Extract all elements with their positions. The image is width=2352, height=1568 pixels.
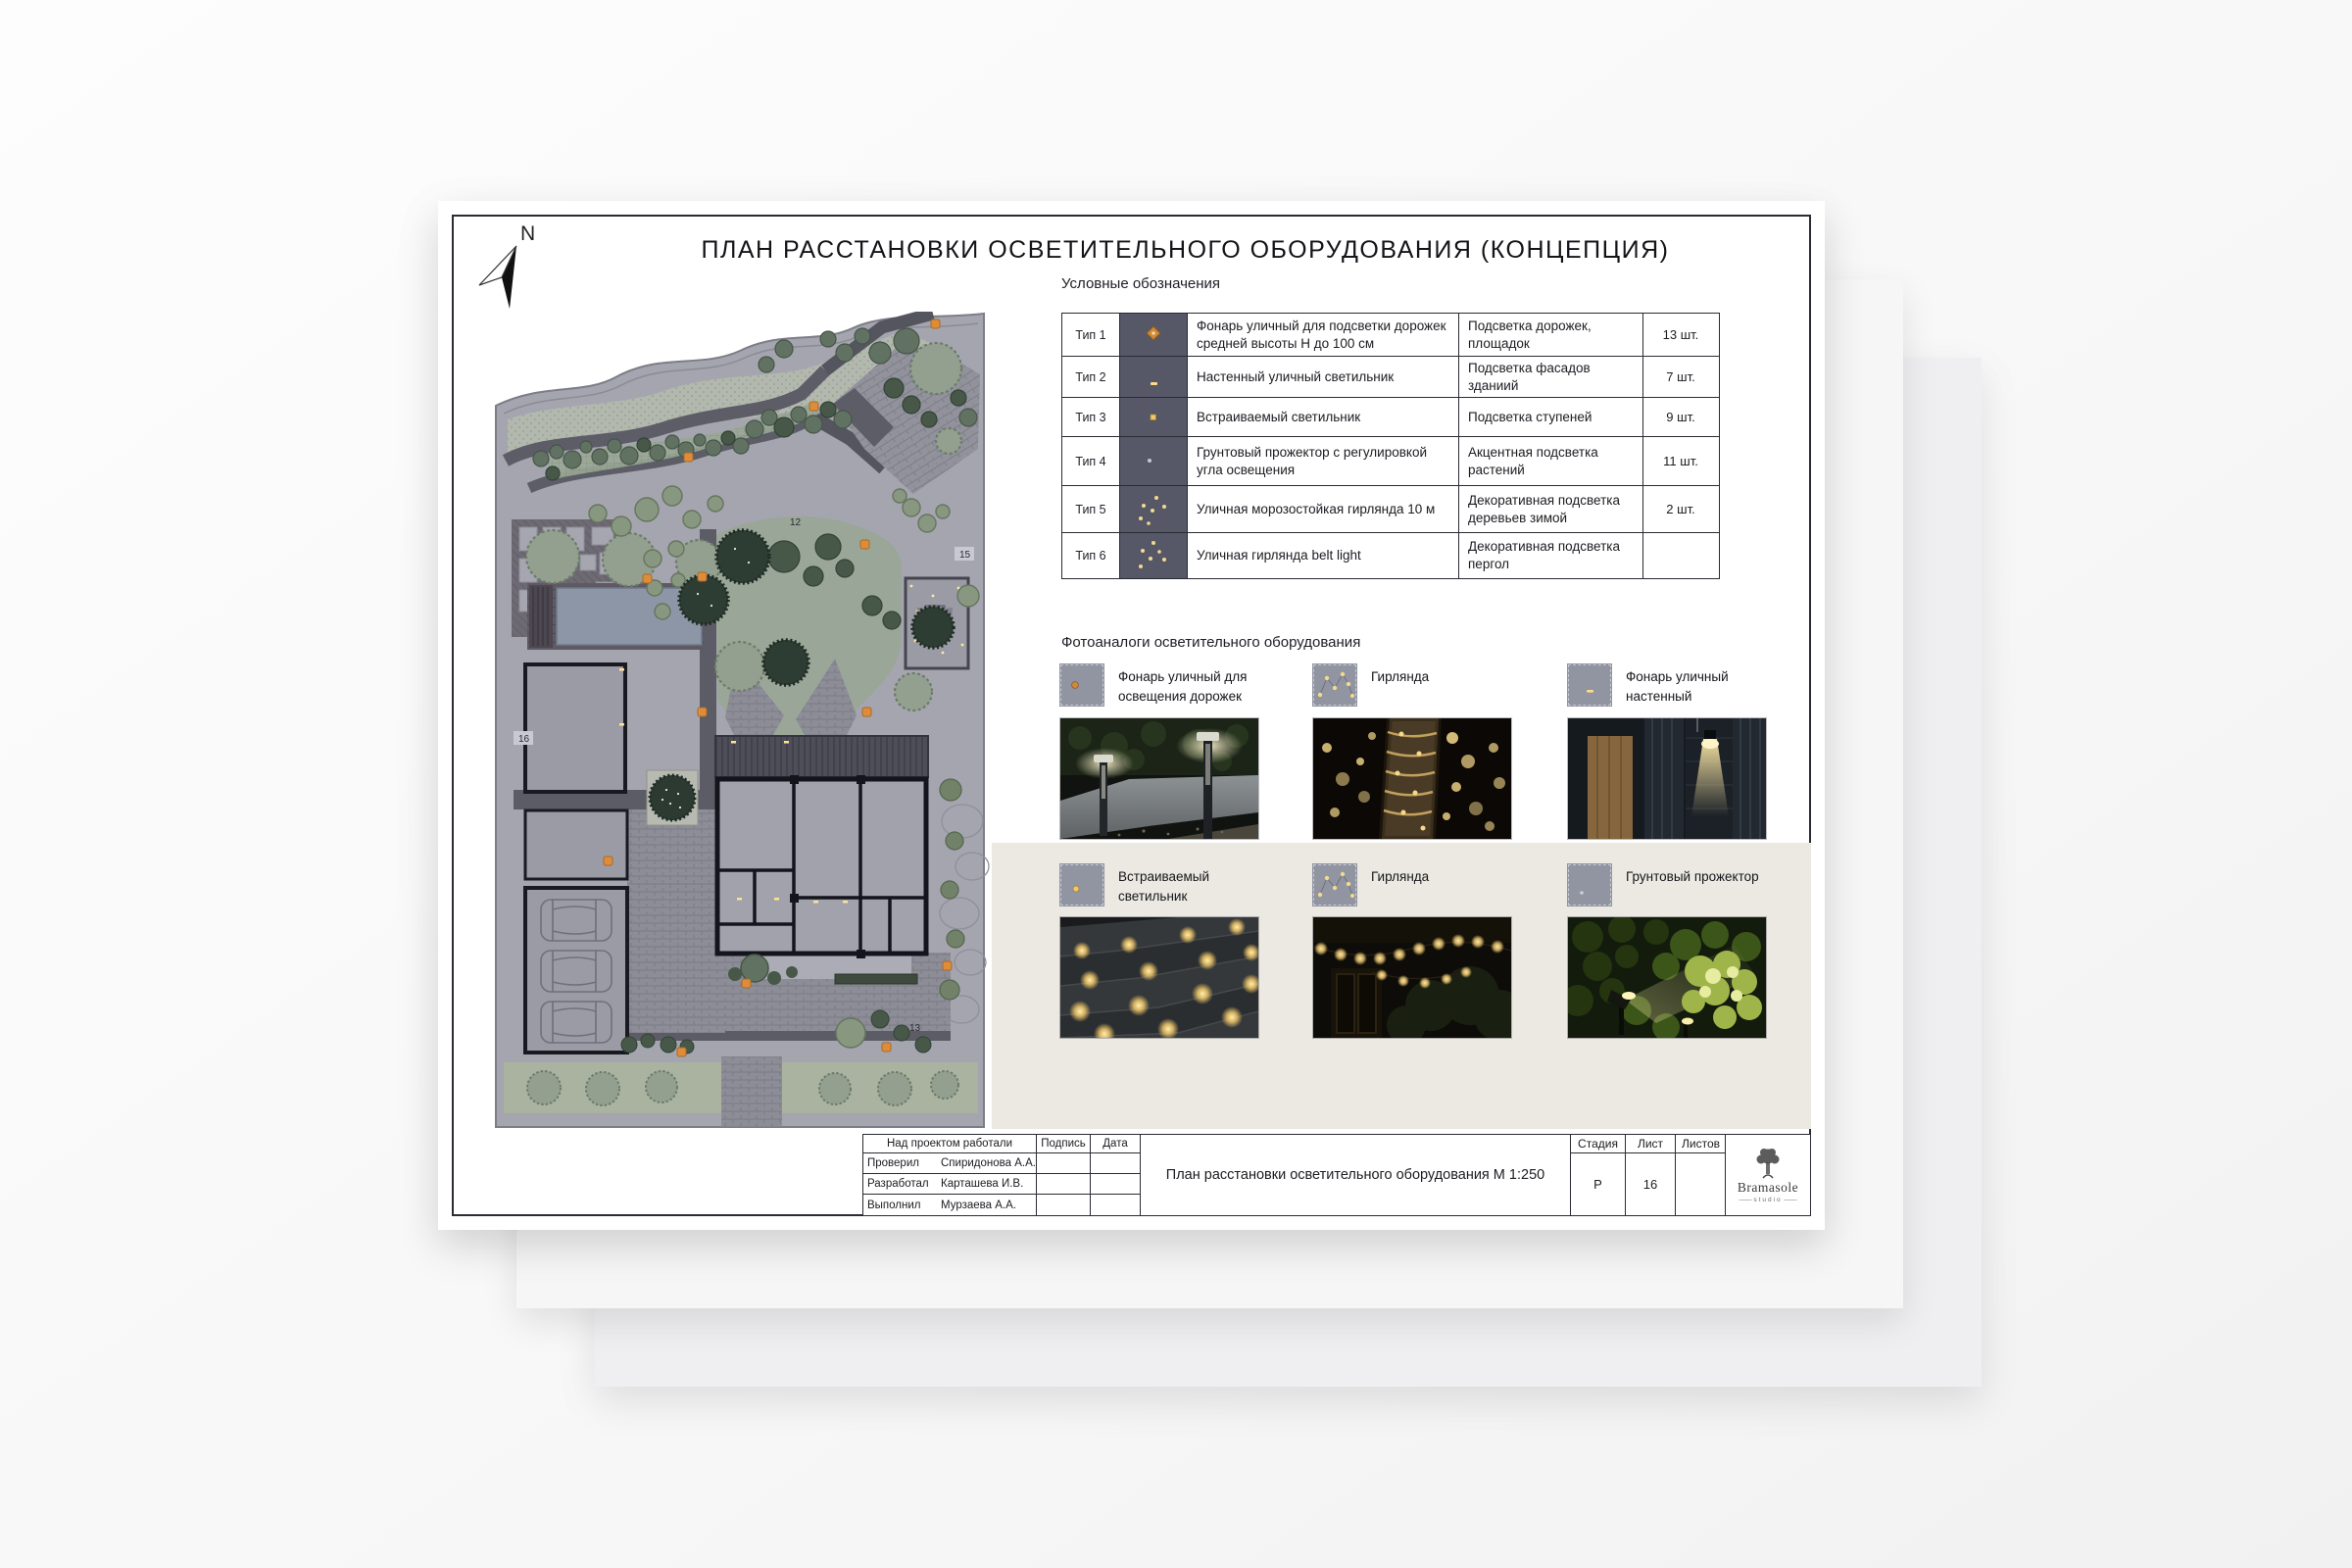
table-row: Тип 5 Уличная морозостойкая гирлянда 10 …	[1062, 486, 1719, 533]
legend-type-label: Тип 1	[1062, 314, 1120, 356]
person-name: Спиридонова А.А.	[937, 1153, 1037, 1174]
legend-purpose: Декоративная подсветка пергол	[1459, 533, 1643, 578]
photo-garland-tree	[1313, 718, 1511, 839]
legend-count: 11 шт.	[1643, 437, 1718, 485]
drawing-title: План расстановки осветительного оборудов…	[1141, 1135, 1571, 1215]
logo-subtitle: studio	[1739, 1197, 1797, 1203]
role-label: Проверил	[863, 1153, 937, 1174]
legend-count: 2 шт.	[1643, 486, 1718, 532]
plan-label-13: 13	[909, 1023, 921, 1034]
table-row: Тип 4 Грунтовый прожектор с регулировкой…	[1062, 437, 1719, 486]
legend-purpose: Декоративная подсветка деревьев зимой	[1459, 486, 1643, 532]
signature-cell	[1037, 1174, 1091, 1195]
garland-icon	[1312, 863, 1357, 906]
title-block-team-table: Над проектом работали Подпись Дата Прове…	[863, 1135, 1141, 1215]
legend-count: 7 шт.	[1643, 357, 1718, 397]
photo-deck-step-lights	[1060, 917, 1258, 1038]
signature-header: Подпись	[1037, 1135, 1091, 1153]
photo-legend-item: Гирлянда	[1312, 663, 1538, 707]
signature-cell	[1037, 1153, 1091, 1174]
ground-spotlight-icon	[1567, 863, 1612, 906]
legend-description: Уличная морозостойкая гирлянда 10 м	[1188, 486, 1459, 532]
studio-logo: Bramasole studio	[1726, 1135, 1810, 1215]
photo-label: Фонарь уличный настенный	[1626, 663, 1773, 706]
photo-legend-item: Грунтовый прожектор	[1567, 863, 1792, 906]
date-cell	[1091, 1174, 1141, 1195]
legend-description: Встраиваемый светильник	[1188, 398, 1459, 436]
drawing-sheet: N ПЛАН РАССТАНОВКИ ОСВЕТИТЕЛЬНОГО ОБОРУД…	[438, 201, 1825, 1230]
bollard-light-icon	[1120, 314, 1188, 356]
date-header: Дата	[1091, 1135, 1141, 1153]
photo-string-lights-pergola	[1313, 917, 1511, 1038]
table-row: Тип 3 Встраиваемый светильник Подсветка …	[1062, 398, 1719, 437]
legend-type-label: Тип 6	[1062, 533, 1120, 578]
signature-cell	[1037, 1195, 1091, 1215]
north-label: N	[520, 222, 535, 246]
legend-count	[1643, 533, 1718, 578]
plan-label-16: 16	[518, 734, 530, 745]
legend-purpose: Подсветка ступеней	[1459, 398, 1643, 436]
legend-purpose: Акцентная подсветка растений	[1459, 437, 1643, 485]
stage-value: Р	[1571, 1153, 1626, 1215]
garland-icon	[1312, 663, 1357, 707]
bollard-light-icon	[1059, 663, 1104, 707]
stage-sheet-table: Стадия Лист Листов Р 16	[1571, 1135, 1726, 1215]
photo-label: Грунтовый прожектор	[1626, 863, 1773, 887]
person-name: Мурзаева А.А.	[937, 1195, 1037, 1215]
legend-count: 9 шт.	[1643, 398, 1718, 436]
legend-type-label: Тип 4	[1062, 437, 1120, 485]
photo-ground-spotlight	[1568, 917, 1766, 1038]
plan-label-12: 12	[790, 517, 802, 528]
title-block: Над проектом работали Подпись Дата Прове…	[862, 1134, 1811, 1216]
date-cell	[1091, 1153, 1141, 1174]
legend-type-label: Тип 2	[1062, 357, 1120, 397]
wall-light-icon	[1120, 357, 1188, 397]
recessed-light-icon	[1120, 398, 1188, 436]
photo-label: Гирлянда	[1371, 663, 1508, 687]
sheet-header: Лист	[1626, 1135, 1676, 1153]
photo-wall-light	[1568, 718, 1766, 839]
legend-description: Настенный уличный светильник	[1188, 357, 1459, 397]
legend-section-title: Условные обозначения	[1061, 275, 1220, 292]
legend-table: Тип 1 Фонарь уличный для подсветки дорож…	[1061, 313, 1720, 579]
garland-icon	[1120, 486, 1188, 532]
role-label: Выполнил	[863, 1195, 937, 1215]
legend-purpose: Подсветка фасадов зданиий	[1459, 357, 1643, 397]
legend-description: Фонарь уличный для подсветки дорожек сре…	[1188, 314, 1459, 356]
photo-legend-item: Фонарь уличный для освещения дорожек	[1059, 663, 1285, 707]
table-row: Тип 2 Настенный уличный светильник Подсв…	[1062, 357, 1719, 398]
photo-legend-item: Гирлянда	[1312, 863, 1538, 906]
table-row: Тип 1 Фонарь уличный для подсветки дорож…	[1062, 314, 1719, 357]
sheets-value	[1676, 1153, 1726, 1215]
photo-legend-item: Встраиваемый светильник	[1059, 863, 1285, 906]
site-plan-drawing: 12 15 16 13	[490, 312, 990, 1129]
recessed-light-icon	[1059, 863, 1104, 906]
legend-count: 13 шт.	[1643, 314, 1718, 356]
photo-legend-item: Фонарь уличный настенный	[1567, 663, 1792, 707]
legend-description: Уличная гирлянда belt light	[1188, 533, 1459, 578]
legend-type-label: Тип 5	[1062, 486, 1120, 532]
ground-spotlight-icon	[1120, 437, 1188, 485]
page-title: ПЛАН РАССТАНОВКИ ОСВЕТИТЕЛЬНОГО ОБОРУДОВ…	[605, 236, 1766, 265]
photo-bollard-lights	[1060, 718, 1258, 839]
belt-light-garland-icon	[1120, 533, 1188, 578]
photo-label: Встраиваемый светильник	[1118, 863, 1265, 906]
photos-section-title: Фотоаналоги осветительного оборудования	[1061, 634, 1360, 651]
photo-label: Фонарь уличный для освещения дорожек	[1118, 663, 1265, 706]
wall-light-icon	[1567, 663, 1612, 707]
person-name: Карташева И.В.	[937, 1174, 1037, 1195]
compass-needle-icon	[477, 222, 556, 320]
legend-purpose: Подсветка дорожек, площадок	[1459, 314, 1643, 356]
site-plan: 12 15 16 13	[490, 312, 990, 1129]
photo-label: Гирлянда	[1371, 863, 1508, 887]
team-header: Над проектом работали	[863, 1135, 1037, 1153]
north-arrow: N	[477, 222, 556, 320]
legend-description: Грунтовый прожектор с регулировкой угла …	[1188, 437, 1459, 485]
sheets-header: Листов	[1676, 1135, 1726, 1153]
tree-logo-icon	[1753, 1148, 1783, 1179]
plan-label-15: 15	[959, 550, 971, 561]
logo-name: Bramasole	[1738, 1180, 1798, 1196]
sheet-value: 16	[1626, 1153, 1676, 1215]
stage-header: Стадия	[1571, 1135, 1626, 1153]
table-row: Тип 6 Уличная гирлянда belt light Декора…	[1062, 533, 1719, 578]
date-cell	[1091, 1195, 1141, 1215]
role-label: Разработал	[863, 1174, 937, 1195]
legend-type-label: Тип 3	[1062, 398, 1120, 436]
